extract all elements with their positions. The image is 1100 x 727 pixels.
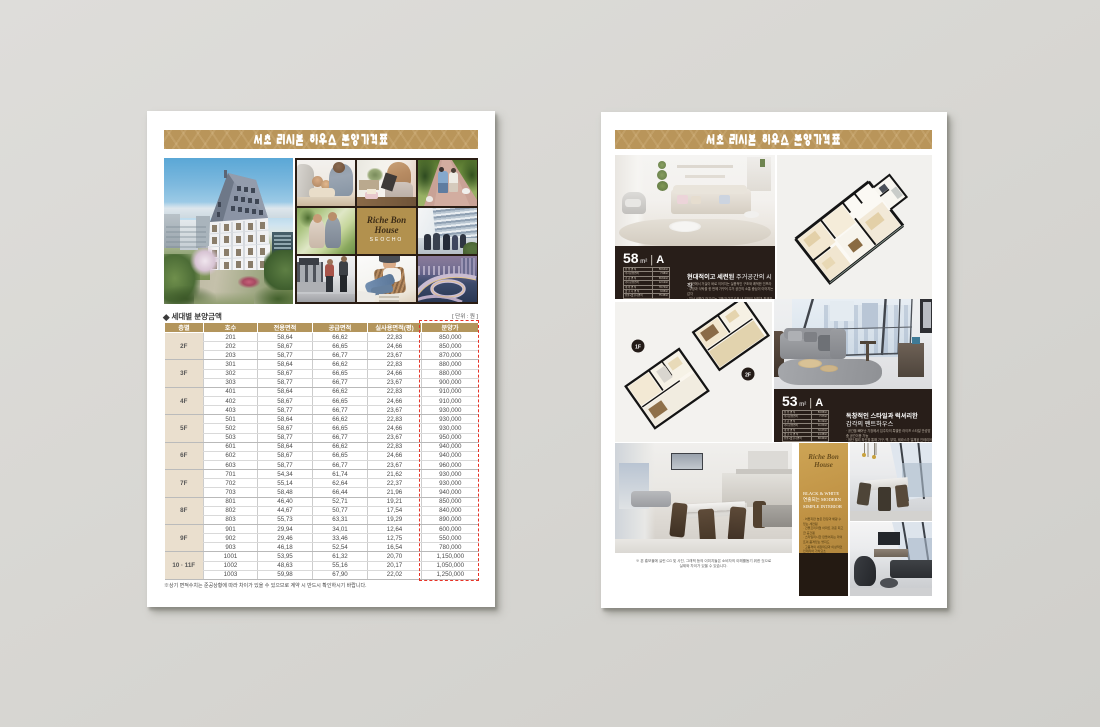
svg-text:1F: 1F bbox=[635, 345, 641, 351]
svg-text:2F: 2F bbox=[745, 373, 751, 379]
